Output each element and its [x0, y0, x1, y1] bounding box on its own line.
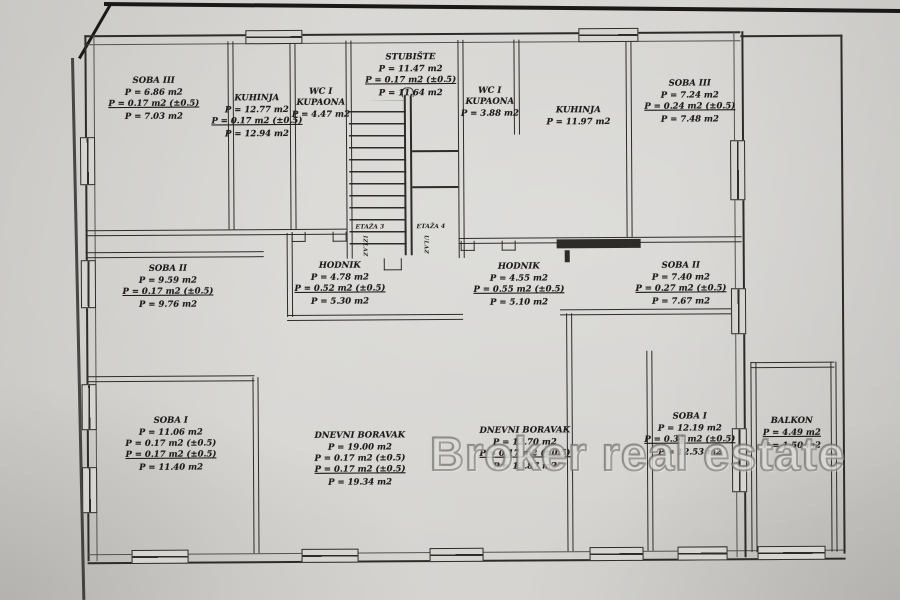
area-line: P = 0.17 m2 (±0.5) [297, 453, 423, 465]
stairwell-wall [457, 40, 464, 258]
room-name: SOBA III [642, 78, 738, 90]
stair-landing-line [412, 186, 458, 188]
room-label-soba3-right: SOBA III P = 7.24 m2 P = 0.24 m2 (±0.5) … [642, 78, 738, 126]
stair-direction-label-left: IZLAZ [362, 236, 368, 264]
area-line: P = 19.00 m2 [297, 442, 423, 454]
room-name: SOBA III [99, 75, 209, 87]
room-name: KUHINJA [531, 105, 626, 117]
room-name: SOBA II [630, 260, 732, 272]
area-total: P = 9.76 m2 [112, 299, 224, 311]
door-jamb [292, 232, 306, 242]
room-name: HODNIK [294, 260, 386, 272]
area-line: P = 0.27 m2 (±0.5) [630, 283, 732, 295]
wall-segment [560, 308, 740, 315]
stair-floor-label-right: ETAŽA 4 [417, 223, 446, 230]
area-line: P = 0.17 m2 (±0.5) [99, 98, 209, 110]
window-symbol [245, 30, 302, 44]
door-jamb [461, 241, 475, 251]
wall-segment [287, 233, 294, 317]
room-name: WC I KUPAONA [461, 86, 519, 108]
wall-segment [84, 31, 740, 45]
room-name: STUBIŠTE [364, 52, 456, 64]
room-label-hodnik-right: HODNIK P = 4.55 m2 P = 0.55 m2 (±0.5) P … [464, 261, 574, 309]
room-name: DNEVNI BORAVAK [297, 430, 423, 442]
area-total: P = 19.34 m2 [297, 477, 423, 489]
room-name: SOBA II [112, 263, 224, 275]
window-symbol [82, 384, 97, 430]
area-line: P = 0.17 m2 (±0.5) [365, 75, 457, 87]
window-symbol [81, 260, 96, 308]
room-label-dnevni-left: DNEVNI BORAVAK P = 19.00 m2 P = 0.17 m2 … [297, 430, 423, 489]
wall-segment [86, 375, 254, 382]
area-total: P = 7.48 m2 [642, 114, 738, 126]
area-line: P = 4.47 m2 [292, 110, 350, 121]
window-symbol [758, 546, 826, 560]
area-line: P = 0.17 m2 (±0.5) [297, 464, 423, 476]
area-line: P = 0.17 m2 (±0.5) [115, 449, 227, 461]
area-line: P = 11.97 m2 [531, 117, 626, 129]
wall-segment [86, 251, 264, 258]
room-name: WC I KUPAONA [292, 87, 350, 109]
window-symbol [730, 140, 745, 200]
window-symbol [578, 28, 638, 42]
area-line: P = 7.24 m2 [642, 90, 738, 102]
stair-rail [410, 95, 413, 255]
room-name: SOBA I [115, 415, 227, 427]
stair-floor-label-left: ETAŽA 3 [356, 223, 385, 230]
area-line: P = 11.06 m2 [115, 427, 227, 439]
stair-landing-line [412, 150, 458, 152]
area-line: P = 0.24 m2 (±0.5) [642, 101, 738, 113]
area-line: P = 4.78 m2 [294, 272, 386, 284]
area-total: P = 5.10 m2 [464, 297, 574, 309]
area-line: P = 9.59 m2 [112, 275, 224, 287]
wall-segment [86, 229, 347, 237]
door-jamb [502, 241, 516, 251]
balcony-wall [750, 362, 834, 369]
wall-segment [740, 35, 842, 37]
area-line: P = 0.17 m2 (±0.5) [112, 286, 224, 298]
scanned-paper: SOBA III P = 6.86 m2 P = 0.17 m2 (±0.5) … [0, 0, 900, 600]
room-label-soba1-left: SOBA I P = 11.06 m2 P = 0.17 m2 (±0.5) P… [115, 415, 227, 474]
area-line: P = 0.55 m2 (±0.5) [464, 284, 574, 296]
area-total: P = 11.40 m2 [115, 462, 227, 474]
area-total: P = 11.64 m2 [365, 88, 457, 100]
door-jamb [333, 232, 347, 242]
area-total: P = 5.30 m2 [294, 296, 386, 308]
watermark-text: Broker real estate [430, 426, 845, 481]
window-symbol [302, 549, 359, 563]
window-symbol [430, 548, 484, 562]
area-line: P = 0.52 m2 (±0.5) [294, 283, 386, 295]
room-label-soba3-left: SOBA III P = 6.86 m2 P = 0.17 m2 (±0.5) … [99, 75, 209, 123]
room-name: SOBA I [639, 411, 741, 423]
area-line: P = 3.88 m2 [461, 109, 519, 120]
area-line: P = 4.55 m2 [464, 273, 574, 285]
window-symbol [590, 547, 644, 561]
window-symbol [80, 137, 95, 185]
area-line: P = 11.47 m2 [365, 64, 457, 76]
window-symbol [731, 288, 746, 334]
door-jamb [384, 258, 402, 270]
area-line: P = 0.17 m2 (±0.5) [115, 438, 227, 450]
room-label-soba2-right: SOBA II P = 7.40 m2 P = 0.27 m2 (±0.5) P… [630, 260, 732, 308]
area-total: P = 7.03 m2 [99, 111, 209, 123]
area-line: P = 6.86 m2 [99, 87, 209, 99]
wall-segment [557, 239, 641, 249]
wall-segment [287, 314, 463, 321]
stair-direction-label-right: ULAZ [423, 235, 429, 263]
room-label-soba2-left: SOBA II P = 9.59 m2 P = 0.17 m2 (±0.5) P… [112, 263, 224, 311]
area-line: P = 7.40 m2 [630, 272, 732, 284]
window-symbol [678, 546, 728, 560]
room-label-wc-left: WC I KUPAONA P = 4.47 m2 [292, 87, 350, 121]
window-symbol [132, 550, 189, 564]
wall-segment [625, 39, 632, 237]
room-label-stubiste: STUBIŠTE P = 11.47 m2 P = 0.17 m2 (±0.5)… [364, 52, 456, 100]
wall-segment [252, 377, 259, 553]
room-label-kuhinja-right: KUHINJA P = 11.97 m2 [531, 105, 626, 129]
room-name: HODNIK [464, 261, 574, 273]
area-total: P = 7.67 m2 [630, 296, 732, 308]
window-symbol [82, 467, 97, 513]
floor-plan: SOBA III P = 6.86 m2 P = 0.17 m2 (±0.5) … [0, 0, 900, 600]
room-label-hodnik-left: HODNIK P = 4.78 m2 P = 0.52 m2 (±0.5) P … [294, 260, 386, 308]
room-label-wc-right: WC I KUPAONA P = 3.88 m2 [461, 86, 519, 120]
area-total: P = 12.94 m2 [201, 129, 313, 141]
